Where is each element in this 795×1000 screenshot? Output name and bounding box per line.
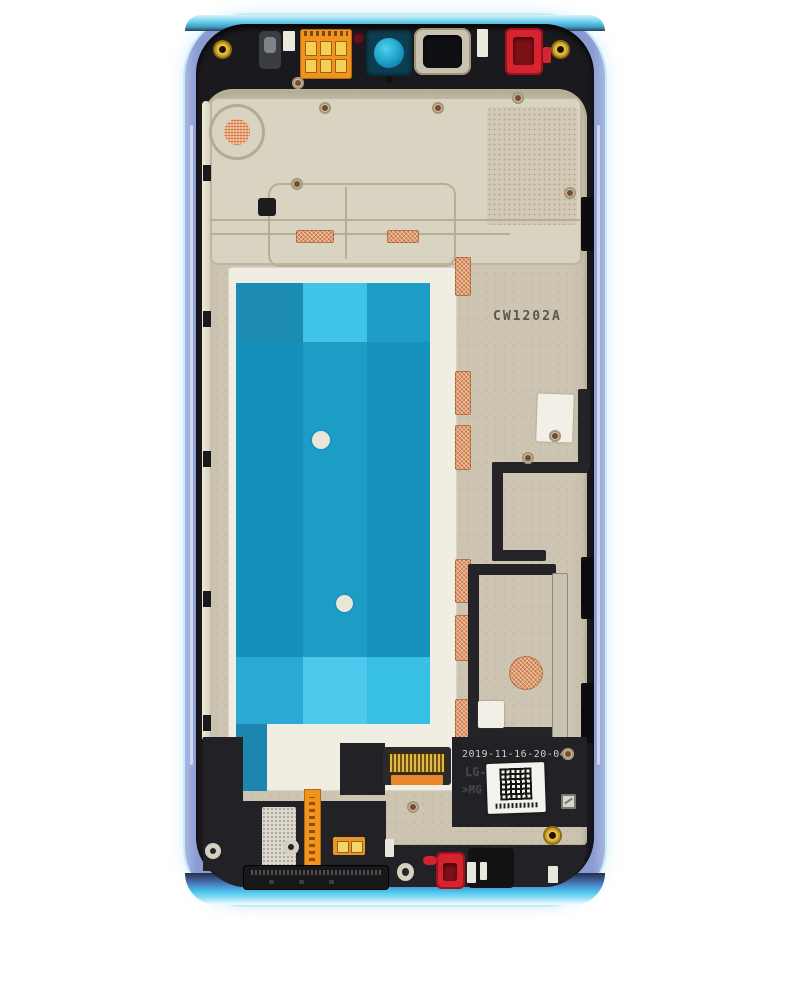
flex-marking bbox=[309, 797, 315, 861]
tape-cell bbox=[303, 657, 367, 724]
gasket-opening bbox=[443, 863, 457, 881]
mini-label bbox=[477, 29, 488, 57]
lcd-flex-ribbon bbox=[391, 775, 443, 785]
tape-cell bbox=[367, 283, 430, 342]
antenna-trace-lower bbox=[468, 564, 556, 575]
antenna-trace-upper bbox=[492, 550, 546, 561]
tape-cell bbox=[303, 342, 367, 657]
plate-screw bbox=[562, 748, 574, 760]
nfc-coil-pad bbox=[455, 425, 471, 470]
lcd-flex-connector-frame bbox=[383, 747, 451, 785]
mini-label bbox=[283, 31, 295, 51]
bottom-chassis-zone bbox=[340, 743, 385, 795]
plate-screw bbox=[407, 801, 419, 813]
tape-cell bbox=[236, 342, 303, 657]
earpiece-housing bbox=[414, 28, 471, 75]
microphone-mesh bbox=[224, 119, 250, 145]
data-matrix-code bbox=[499, 767, 532, 800]
corner-screw bbox=[553, 42, 568, 57]
plate-screw bbox=[319, 102, 331, 114]
bottom-chassis-zone bbox=[203, 737, 243, 809]
plate-screw bbox=[291, 178, 303, 190]
antenna-contact-pads bbox=[333, 837, 365, 855]
plate-screw bbox=[549, 430, 561, 442]
nfc-coil-pad bbox=[455, 371, 471, 415]
contact-pad bbox=[467, 862, 476, 883]
loudspeaker-grille bbox=[243, 865, 389, 890]
plate-screw bbox=[512, 92, 524, 104]
data-matrix-label bbox=[486, 762, 546, 814]
flex-marking bbox=[304, 31, 348, 36]
screw-boss bbox=[283, 839, 299, 855]
coil-pad-top bbox=[387, 230, 419, 243]
sensor-dot bbox=[386, 76, 393, 83]
left-frame-rail bbox=[202, 101, 210, 741]
side-port-slot bbox=[581, 197, 594, 251]
side-port-slot bbox=[581, 557, 594, 619]
etched-frame-outline bbox=[268, 183, 456, 267]
frame-tab bbox=[203, 451, 211, 467]
phone-midframe: CW1202A bbox=[185, 15, 605, 905]
frame-tab bbox=[203, 715, 211, 731]
headphone-jack-gasket bbox=[505, 28, 543, 75]
plate-stamp-text: CW1202A bbox=[493, 309, 562, 324]
speaker-mesh-copper bbox=[509, 656, 543, 690]
front-camera-lens bbox=[374, 38, 404, 68]
tape-cell bbox=[236, 657, 303, 724]
plate-screw bbox=[564, 187, 576, 199]
contact-pad bbox=[385, 839, 394, 857]
grille-micro-text bbox=[251, 870, 381, 875]
front-camera-housing bbox=[366, 30, 412, 76]
corner-screw bbox=[545, 828, 560, 843]
side-bracket-rail bbox=[552, 573, 568, 741]
side-button-flex bbox=[304, 789, 321, 875]
contact-pad bbox=[480, 862, 487, 880]
foam-mesh-sticker bbox=[262, 807, 296, 869]
antenna-trace-upper bbox=[492, 462, 503, 561]
side-port-slot bbox=[581, 683, 594, 743]
screw-boss bbox=[205, 843, 221, 859]
frame-tab bbox=[203, 311, 211, 327]
coil-pad-top bbox=[296, 230, 334, 243]
gasket-tab bbox=[543, 47, 551, 63]
lcd-flex-connector-pins bbox=[388, 752, 446, 774]
frame-tab bbox=[203, 591, 211, 607]
sensor-flex-cable bbox=[300, 29, 352, 79]
white-sticker bbox=[478, 701, 504, 728]
label-micro-text bbox=[496, 802, 538, 808]
microphone-gasket bbox=[352, 32, 365, 45]
plate-screw bbox=[292, 77, 304, 89]
frame-left-highlight bbox=[190, 125, 193, 765]
date-code-text: 2019-11-16-20-04 bbox=[462, 749, 566, 760]
alignment-hole bbox=[312, 431, 330, 449]
alignment-hole bbox=[336, 595, 353, 612]
usb-port-gasket bbox=[436, 852, 465, 889]
nfc-coil-pad bbox=[455, 257, 471, 296]
antenna-trace-upper bbox=[492, 462, 588, 473]
frame-tab bbox=[203, 165, 211, 181]
earpiece-speaker-mesh bbox=[423, 35, 462, 68]
tape-cell bbox=[367, 657, 430, 724]
page: { "image": { "type": "product-photo", "s… bbox=[0, 0, 795, 1000]
flex-contact-pads bbox=[305, 41, 347, 73]
graphite-tape bbox=[236, 283, 430, 724]
etched-frame-bar bbox=[345, 187, 347, 259]
plate-screw bbox=[522, 452, 534, 464]
tape-cell bbox=[303, 283, 367, 342]
corner-screw bbox=[215, 42, 230, 57]
tape-cell bbox=[367, 342, 430, 657]
antenna-trace-upper bbox=[578, 389, 590, 469]
tape-cell bbox=[236, 283, 303, 342]
engraved-square-icon bbox=[561, 794, 576, 809]
antenna-texture-patch bbox=[487, 107, 577, 225]
frame-right-highlight bbox=[597, 125, 600, 765]
plate-screw bbox=[432, 102, 444, 114]
screw-boss bbox=[397, 863, 414, 881]
metal-clip bbox=[259, 31, 281, 69]
frame-cutout bbox=[258, 198, 276, 216]
gasket-pill bbox=[423, 856, 437, 865]
gasket-opening bbox=[513, 37, 534, 65]
contact-pad bbox=[548, 866, 558, 883]
